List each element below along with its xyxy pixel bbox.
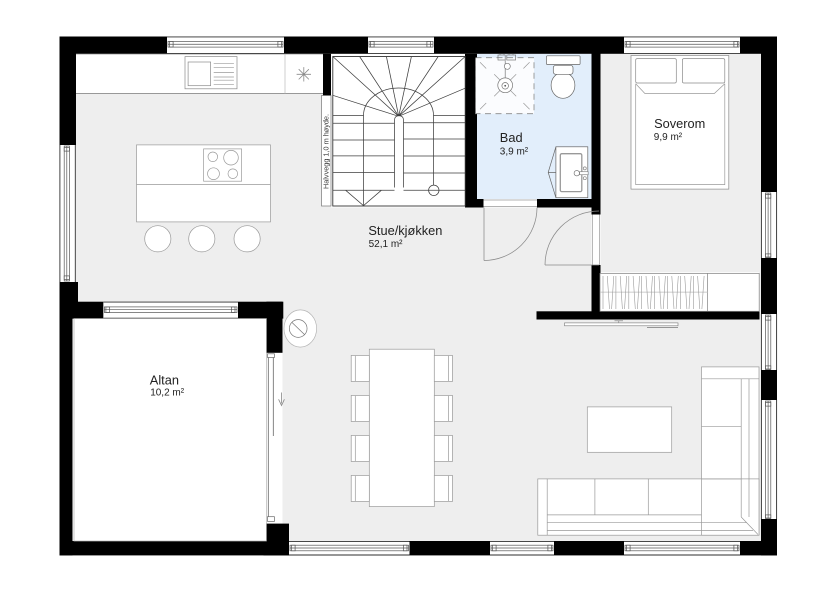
svg-text:Soverom: Soverom [654,116,705,131]
svg-text:3,9 m²: 3,9 m² [500,146,529,157]
svg-text:Halvvegg 1,0 m høyde.: Halvvegg 1,0 m høyde. [322,114,331,189]
svg-text:Stue/kjøkken: Stue/kjøkken [368,223,442,238]
svg-text:9,9 m²: 9,9 m² [654,132,683,143]
svg-text:52,1 m²: 52,1 m² [369,239,404,250]
svg-text:Altan: Altan [150,373,179,388]
svg-text:Bad: Bad [500,130,523,145]
svg-text:10,2 m²: 10,2 m² [150,388,185,399]
